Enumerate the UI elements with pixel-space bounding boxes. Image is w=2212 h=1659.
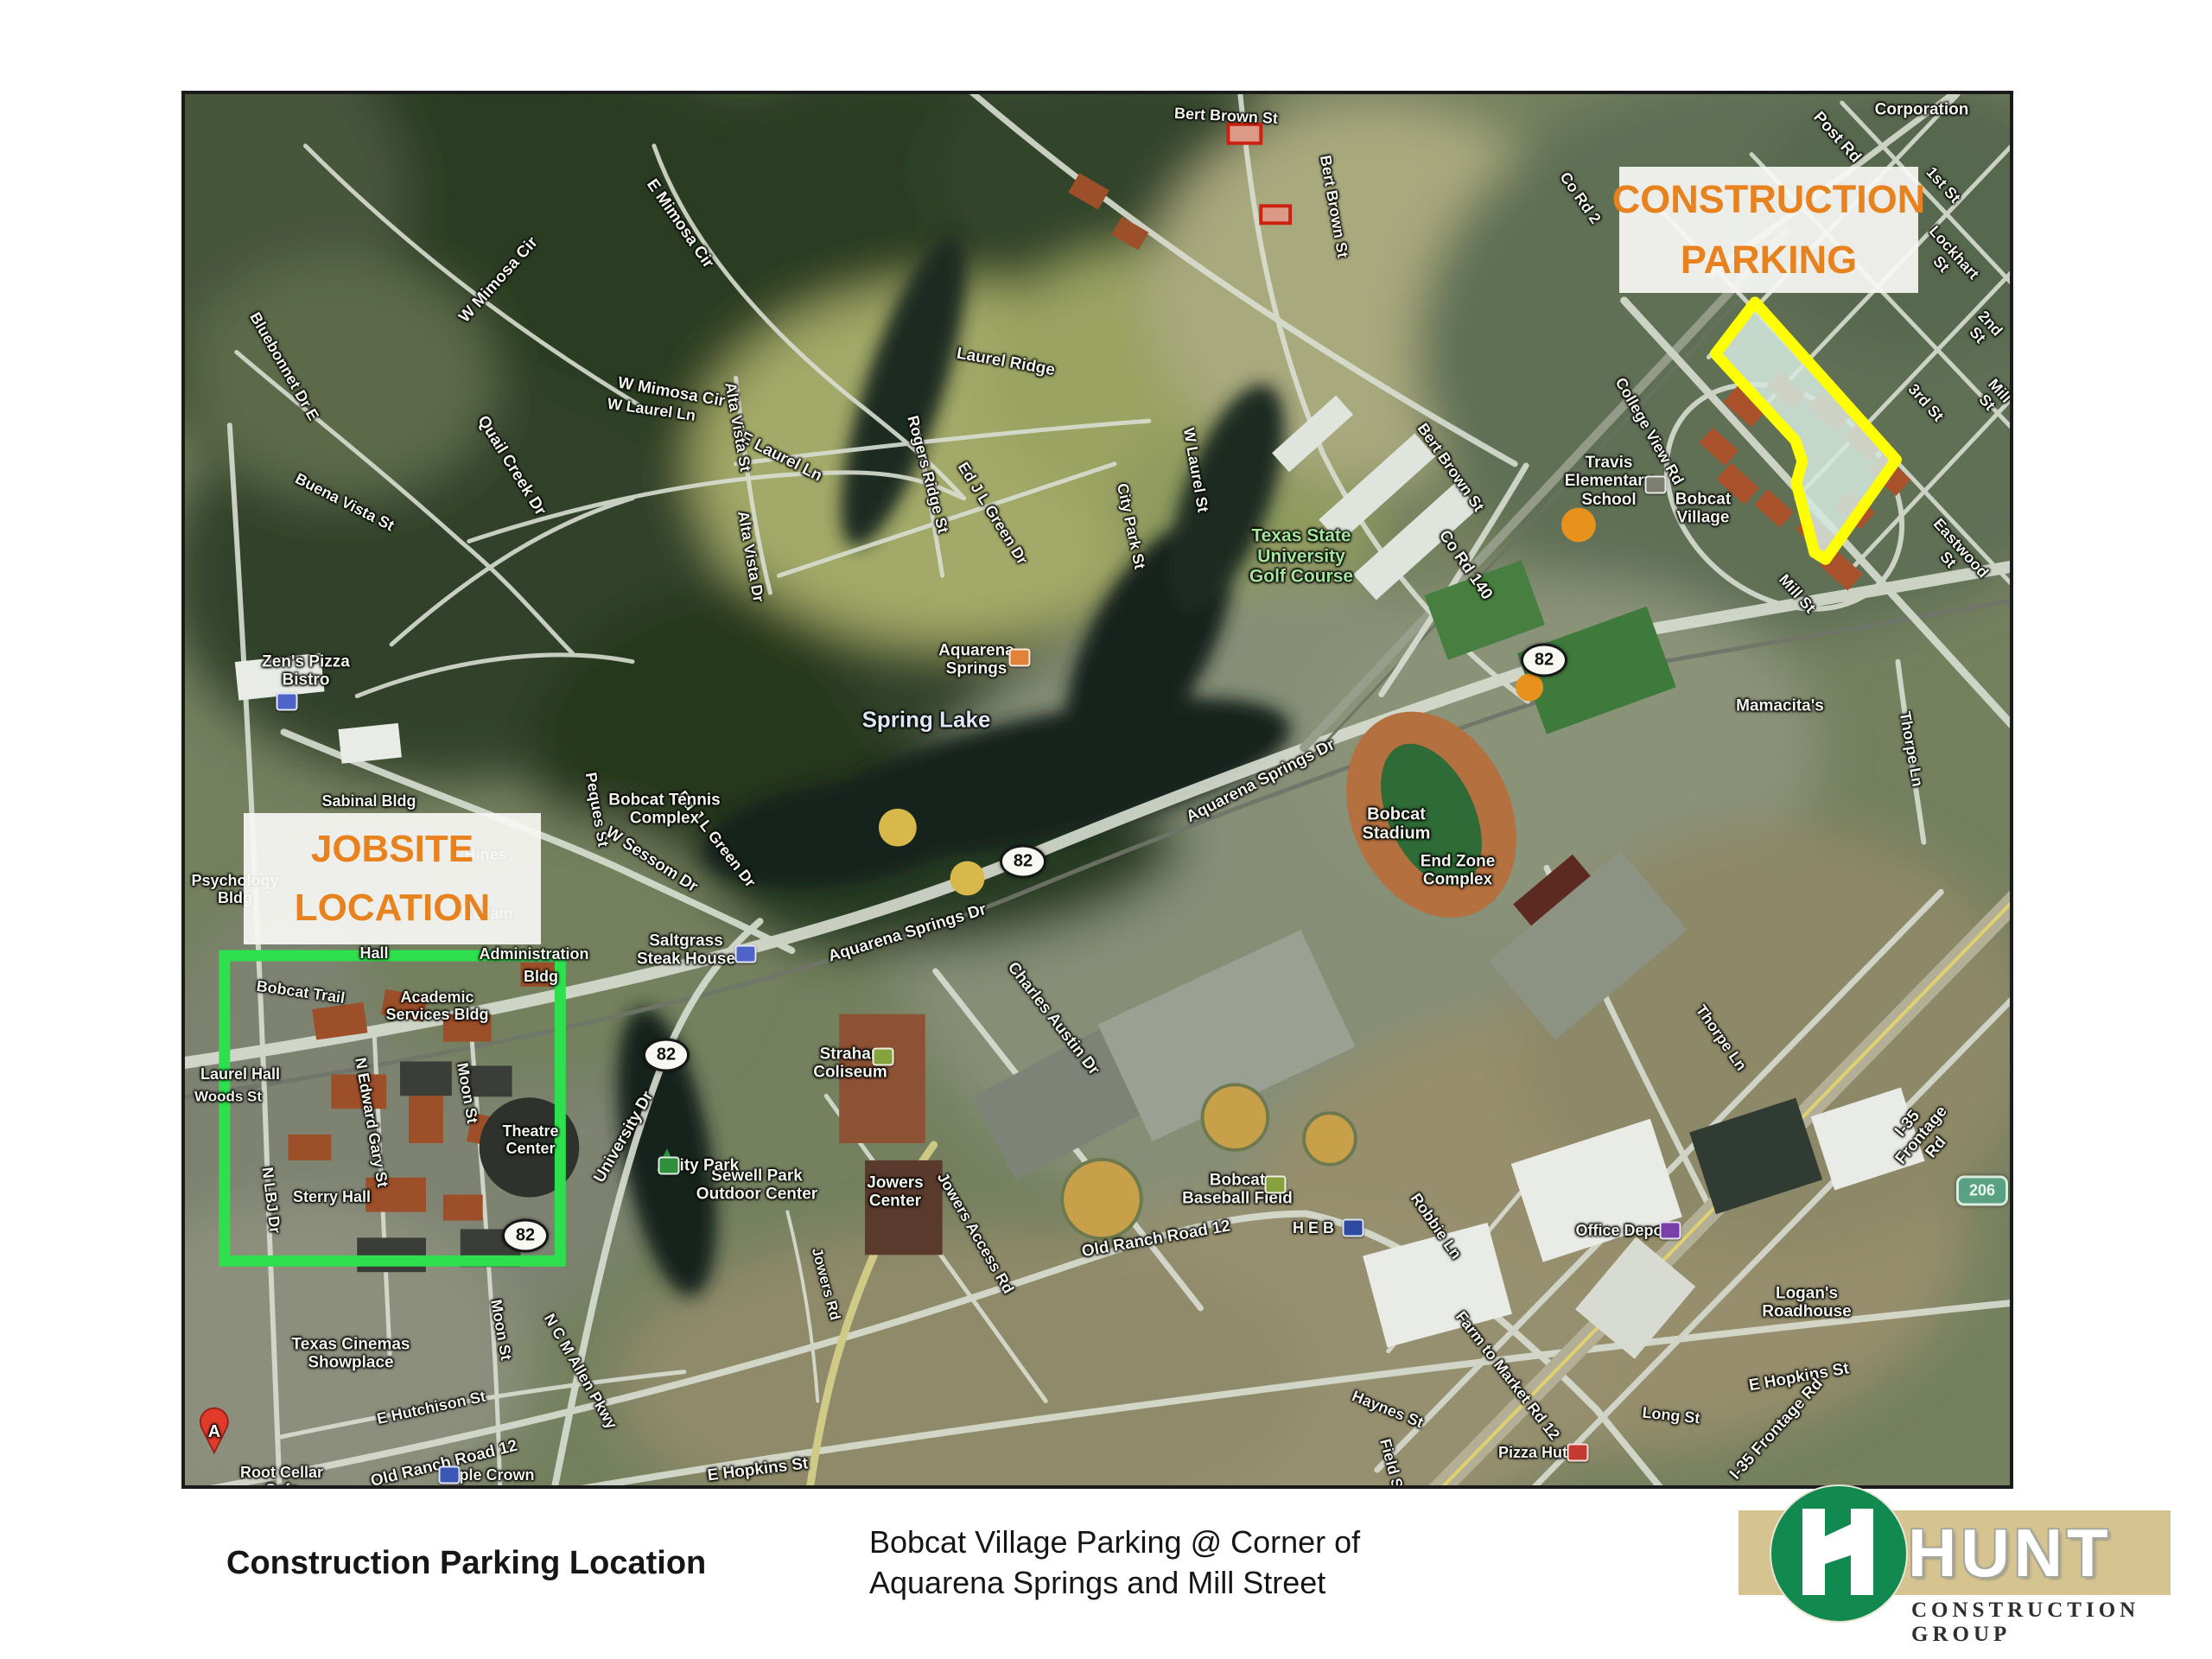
map-label: University Dr [590, 1088, 658, 1185]
hunt-logo-subtitle: CONSTRUCTION GROUP [1911, 1599, 2184, 1647]
map-label: Office Depot [1575, 1222, 1668, 1239]
map-label: Mamacita's [1736, 696, 1824, 715]
office-depot-icon [1660, 1222, 1681, 1240]
city-park-icon [658, 1157, 680, 1175]
map-label: Bluebonnet Dr E [246, 309, 322, 423]
steakhouse-icon [735, 945, 757, 963]
map-label: Bert Brown St [1317, 154, 1352, 259]
map-label: Field St [1376, 1437, 1408, 1489]
map-label: N LBJ Dr [258, 1166, 283, 1235]
map-label: Academic Services Bldg [385, 988, 488, 1023]
map-label: Charles Austin Dr [1003, 958, 1103, 1078]
map-label: Aquarena Springs Dr [1184, 735, 1338, 826]
route-shield: 82 [1000, 845, 1046, 879]
map-label: Mill St [1972, 375, 2013, 417]
triple-crown-icon [439, 1466, 461, 1484]
map-label: Mill St [1776, 571, 1819, 617]
map-label: E Hutchison St [375, 1388, 486, 1427]
map-label: Buena Vista St [292, 469, 397, 534]
map-label: W Laurel St [1179, 426, 1211, 513]
map-label: Haynes St [1350, 1387, 1426, 1431]
map-label: End Zone Complex [1421, 853, 1496, 890]
satellite-map: W Mimosa CirE Mimosa CirW Mimosa CirQuai… [181, 91, 2013, 1489]
map-label: Moon St [487, 1298, 515, 1361]
map-label: Bldg [524, 968, 558, 985]
map-label: E Mimosa Cir [643, 176, 717, 272]
map-label: Corporation [1875, 100, 1969, 118]
aquarena-springs-icon [1009, 649, 1031, 667]
map-label: Travis Elementary School [1565, 454, 1653, 509]
map-label: Aquarena Springs Dr [826, 900, 988, 966]
map-label: City Park St [1114, 481, 1149, 570]
map-label: Laurel Ridge [955, 345, 1056, 380]
strahan-icon [873, 1048, 894, 1066]
pizza-hut-icon [1567, 1444, 1589, 1462]
map-label: Eastwood St [1917, 515, 1993, 593]
map-label: Old Ranch Road 12 [1080, 1217, 1231, 1261]
jobsite-location-callout: JOBSITE LOCATION [244, 813, 541, 944]
map-label: Rogers Ridge St [904, 414, 952, 535]
map-label: Bert Brown St [1174, 105, 1279, 127]
map-label: Farm to Market Rd 12 [1452, 1308, 1564, 1444]
map-label: Texas Cinemas Showplace [292, 1336, 410, 1373]
map-label: E Hopkins St [707, 1454, 810, 1484]
map-label: Robbie Ln [1408, 1190, 1465, 1262]
baseball-field-icon [1265, 1176, 1287, 1194]
map-label: Ed J L Green Dr [954, 459, 1031, 568]
map-label: Spring Lake [862, 707, 991, 732]
map-label: Logan's Roadhouse [1762, 1285, 1851, 1322]
map-label: Alta Vista St [721, 381, 754, 474]
map-label: Sterry Hall [293, 1188, 371, 1205]
hunt-monogram-icon [1770, 1484, 1908, 1623]
map-label: Bobcat Stadium [1363, 805, 1431, 844]
map-label: Aquarena Springs [938, 642, 1014, 679]
pizza-bistro-icon [276, 693, 298, 711]
map-label: I-35 Frontage Rd [1726, 1375, 1827, 1484]
map-label: Jowers Rd [809, 1246, 844, 1322]
map-label: Bobcat Tennis Complex [608, 791, 721, 829]
route-shield: 82 [1521, 644, 1567, 677]
map-label: W Sessom Dr [602, 823, 701, 897]
map-label: Hall [359, 944, 388, 962]
route-shield: 82 [643, 1039, 690, 1072]
map-label: Laurel Hall [200, 1065, 280, 1083]
map-label: Zen's Pizza Bistro [262, 653, 350, 690]
map-label: Quail Creek Dr [474, 412, 550, 518]
school-icon [1645, 476, 1667, 494]
map-label: Thorpe Ln [1693, 1001, 1751, 1074]
hunt-logo-word: HUNT [1908, 1514, 2113, 1592]
slide: { "map": { "annotations": { "constructio… [0, 0, 2212, 1659]
map-label: N C M Allen Pkwy [541, 1311, 621, 1432]
map-overlays: W Mimosa CirE Mimosa CirW Mimosa CirQuai… [185, 94, 2010, 1485]
map-label: Thorpe Ln [1896, 710, 1926, 788]
map-label: Bert Brown St [1414, 420, 1487, 515]
construction-parking-callout: CONSTRUCTION PARKING [1619, 167, 1918, 293]
map-label: I-35 Frontage Rd [1872, 1084, 1971, 1186]
map-label: Saltgrass Steak House [637, 932, 735, 969]
caption-construction-parking-location: Construction Parking Location [226, 1545, 706, 1582]
map-label: A [208, 1422, 220, 1441]
map-label: H E B [1293, 1219, 1334, 1236]
map-label: Alta Vista Dr [734, 510, 767, 604]
map-label: Woods St [194, 1088, 262, 1104]
map-label: Jowers Center [867, 1174, 923, 1211]
caption-bobcat-village-parking: Bobcat Village Parking @ Corner of Aquar… [869, 1522, 1360, 1604]
hunt-logo: HUNT CONSTRUCTION GROUP [1738, 1484, 2184, 1631]
map-label: Moon St [454, 1061, 481, 1124]
map-label: Texas State University Golf Course [1249, 526, 1353, 588]
map-label: Co Rd 2 [1556, 168, 1605, 226]
route-shield: 206 [1956, 1176, 2008, 1206]
map-label: Pizza Hut [1498, 1444, 1567, 1461]
map-label: N Edward Gary St [352, 1056, 391, 1188]
map-label: Long St [1642, 1403, 1701, 1427]
map-label: 2nd St [1961, 308, 2005, 352]
map-label: 3rd St [1904, 380, 1947, 424]
map-label: Post Rd [1809, 108, 1865, 167]
heb-icon [1343, 1219, 1364, 1237]
map-label: W Mimosa Cir [455, 233, 542, 327]
map-label: Bobcat Village [1675, 491, 1731, 528]
map-label: Jowers Access Rd [934, 1169, 1018, 1296]
map-label: Root Cellar Cafe [240, 1464, 323, 1489]
map-label: Bobcat Trail [256, 977, 346, 1007]
route-shield: 82 [502, 1219, 549, 1253]
map-label: Co Rd 140 [1435, 527, 1497, 603]
map-label: 1st St [1923, 163, 1964, 207]
map-label: Theatre Center [502, 1122, 558, 1157]
map-label: Sabinal Bldg [321, 792, 416, 810]
map-label: Administration [479, 945, 588, 963]
